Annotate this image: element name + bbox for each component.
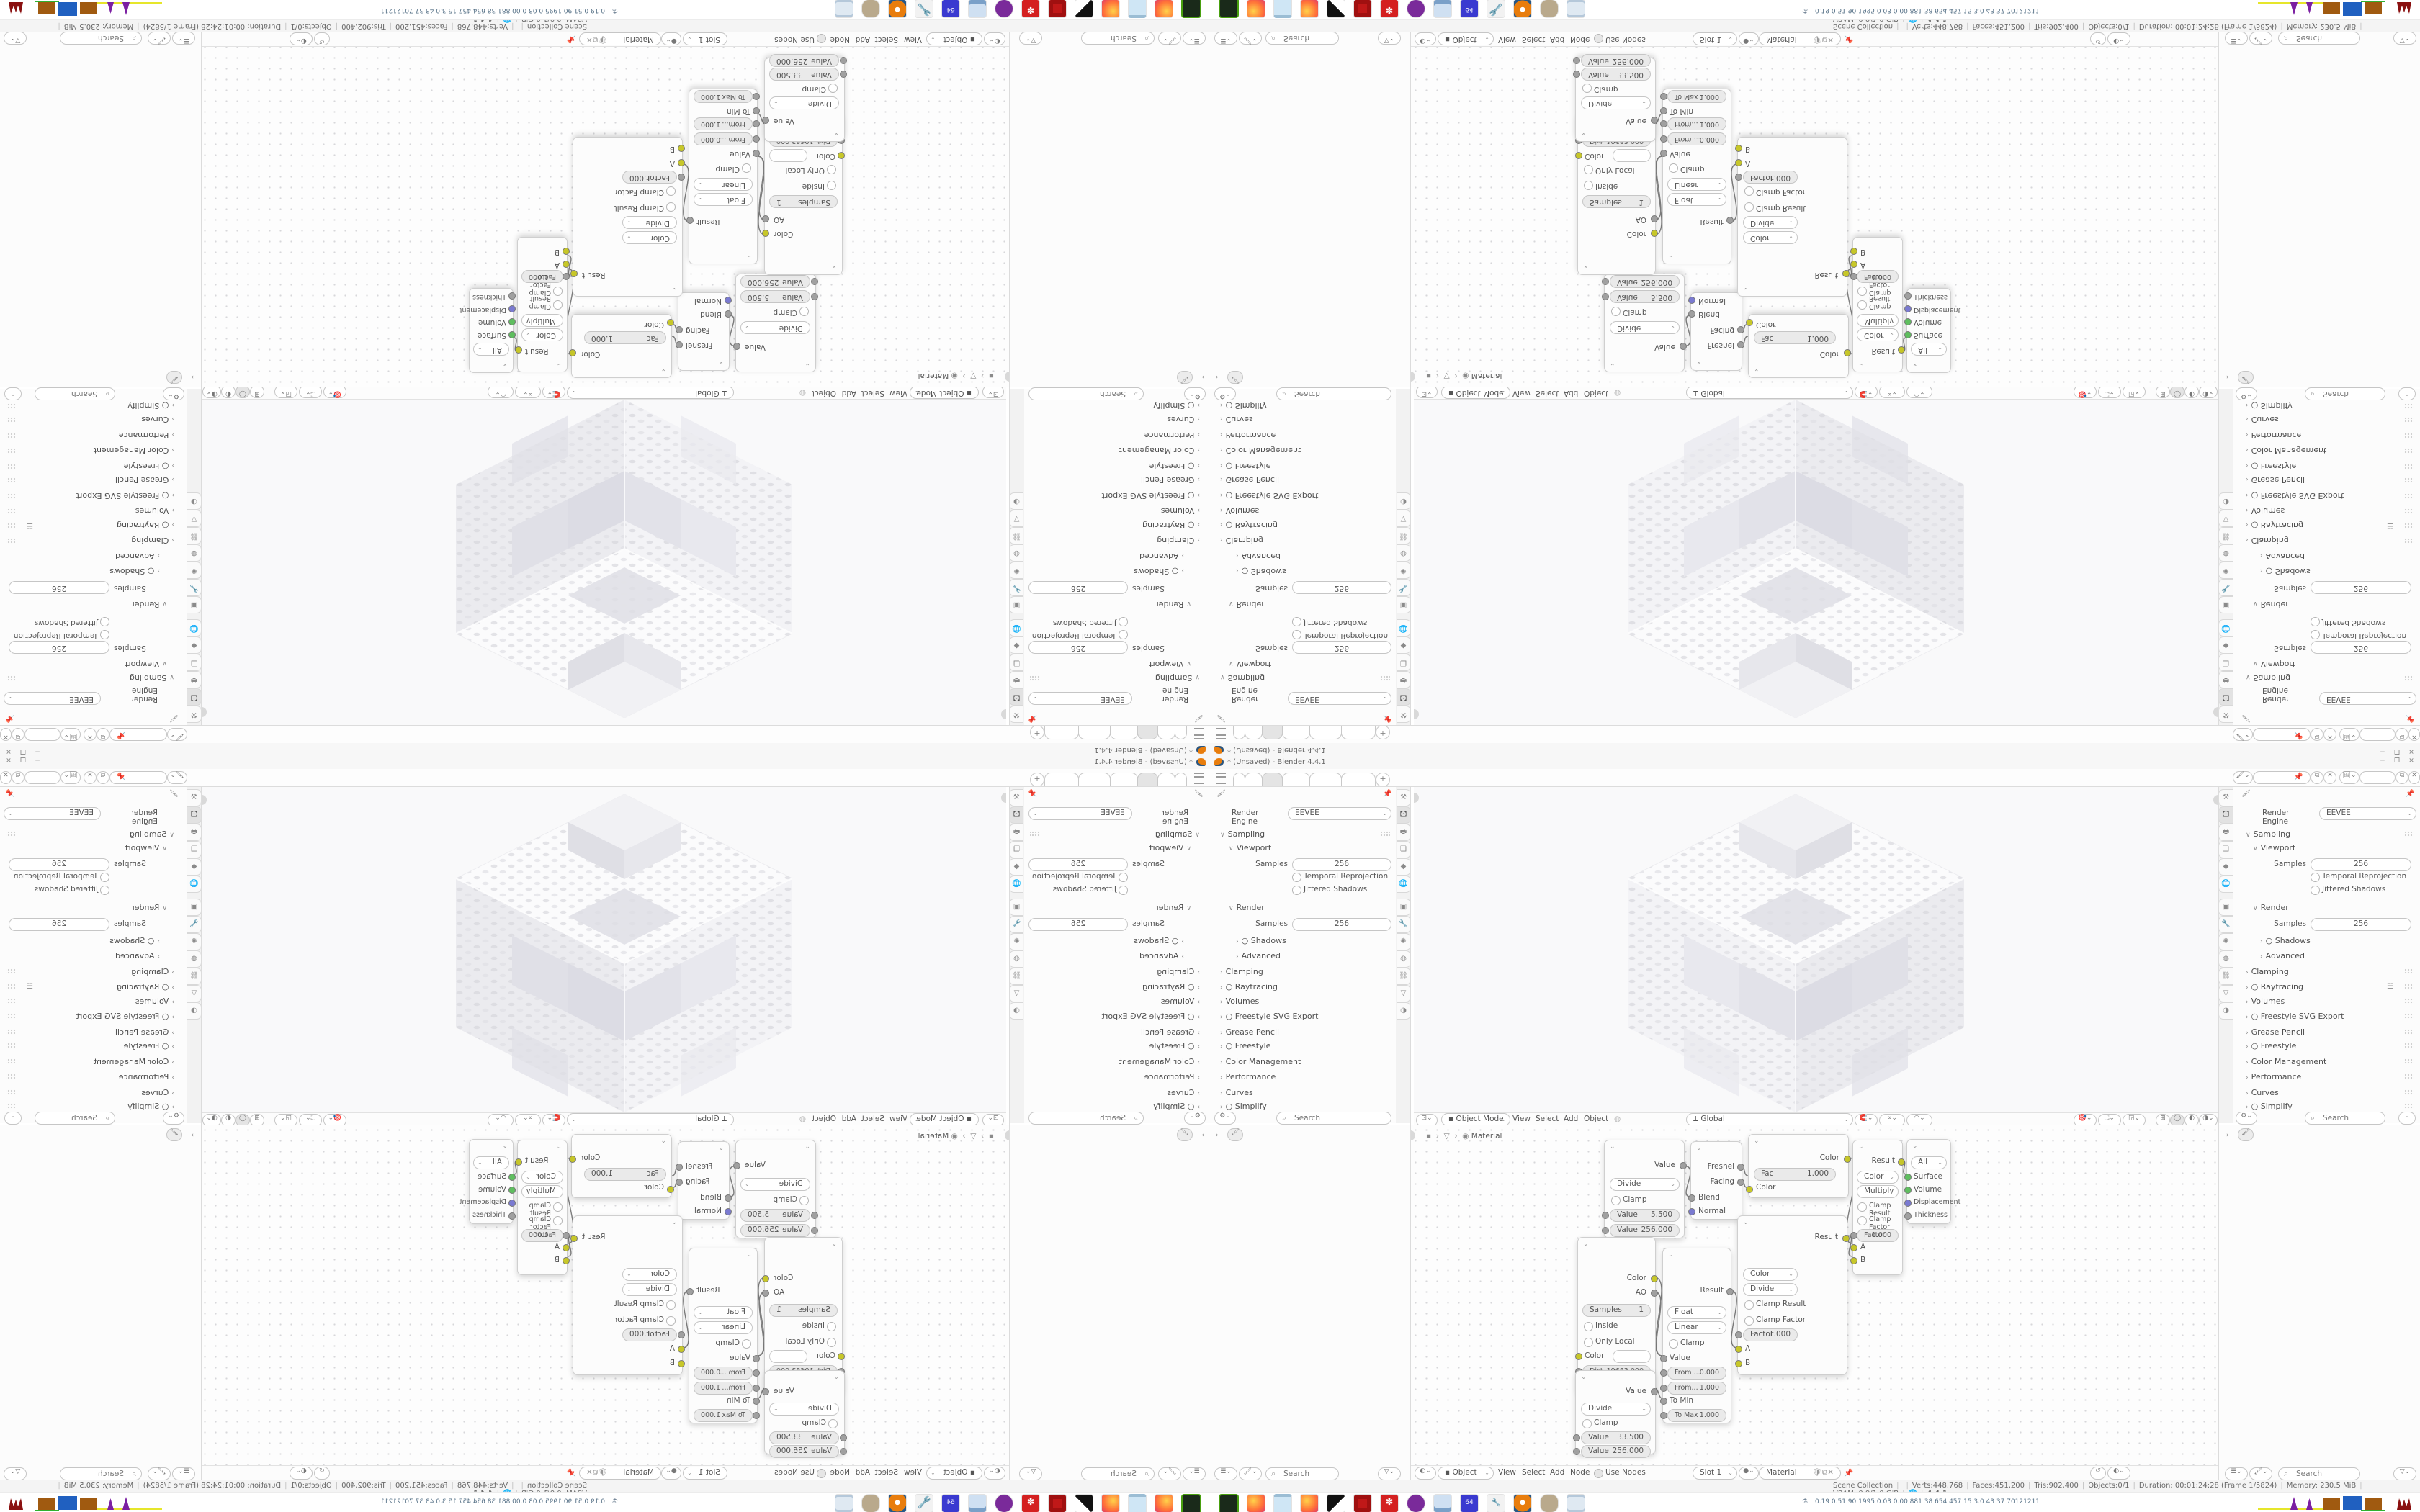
notes-icon[interactable] [1128,0,1147,18]
socket-fresnel-out[interactable] [676,341,683,348]
value-field-1[interactable]: Value5.500 [1610,1209,1680,1222]
prop-tab-particles[interactable]: ✺ [2218,933,2233,950]
use-nodes-checkbox[interactable]: Use Nodes [1594,1468,1652,1478]
copy-datablock-button[interactable]: ⧉ [97,728,109,741]
factor-field[interactable]: Factor1.000 [521,1229,563,1242]
pin-icon[interactable]: 📌 [6,790,14,798]
brush-asset-button[interactable]: 🖌 [166,1128,182,1141]
overlay-node-button[interactable]: ◐⌄ [290,1467,313,1480]
section-grease-pencil[interactable]: ›Grease Pencil [2246,474,2305,485]
value-field-2[interactable]: Value256.000 [769,1445,839,1458]
value-field-1[interactable]: Value33.500 [769,1431,839,1444]
collapse-chevron-icon[interactable]: ⌄ [1696,360,1702,367]
socket-a-in[interactable] [678,1346,685,1353]
copy-image-button[interactable]: ⧉ [12,728,24,741]
brush-asset-button[interactable]: 🖌 [1177,371,1193,384]
math-operation-dropdown[interactable]: Divide⌄ [740,321,810,334]
socket-factor-in[interactable] [1850,1232,1857,1239]
brush-name-field[interactable]: 📌 [109,771,167,784]
render-samples-field[interactable]: 256 [1028,918,1128,931]
menu-view[interactable]: View [1512,389,1531,397]
brush-asset-button[interactable]: 🖌 [1227,1128,1243,1141]
clamp-checkbox[interactable]: Clamp [1611,307,1676,317]
socket-volume-in[interactable] [1904,1187,1912,1194]
clamp-checkbox[interactable]: Clamp [1582,1418,1647,1428]
section-simplify[interactable]: ›○ Simplify [127,1102,174,1112]
mix-type-dropdown[interactable]: Color⌄ [622,1268,677,1281]
shelf-search[interactable] [1081,1467,1155,1480]
section-grease-pencil[interactable]: ›Grease Pencil [2246,1027,2305,1038]
prop-tab-output[interactable]: 🖶 [2218,824,2233,841]
socket-fresnel-out[interactable] [676,1164,683,1171]
prop-tab-data[interactable]: ▽ [1397,985,1411,1002]
jittered-shadows-checkbox[interactable]: Jittered Shadows [2311,885,2415,895]
collapse-chevron-icon[interactable]: ⌄ [660,1138,666,1145]
clamp-factor-checkbox[interactable]: Clamp Factor [519,1215,563,1225]
settings-red-icon[interactable] [1353,0,1372,18]
viewport-samples-field[interactable]: 256 [2311,858,2411,871]
socket-value-in-2[interactable] [811,278,818,285]
image-name-field[interactable] [2359,771,2396,784]
prop-tab-render[interactable]: 🖸 [1397,688,1411,706]
blender-icon[interactable] [888,0,907,18]
prop-tab-material[interactable]: ◑ [1009,492,1023,510]
collapse-chevron-icon[interactable]: ⌄ [502,1143,508,1150]
prop-tab-physics[interactable]: ◍ [187,544,202,562]
prop-tab-output[interactable]: 🖶 [1397,824,1411,841]
prop-tab-particles[interactable]: ✺ [187,562,202,579]
list-icon[interactable]: ☱ [27,982,33,991]
prop-tab-particles[interactable]: ✺ [1009,933,1023,950]
node-math-divide-2[interactable]: ⌄ Value Divide⌄ Clamp Value33.500 Value2… [764,1370,845,1454]
interpolation-dropdown[interactable]: Linear⌄ [1667,178,1726,191]
inside-checkbox[interactable]: Inside [1584,1321,1649,1331]
restore-button[interactable]: ❐ [19,747,27,755]
socket-from-max-in[interactable] [1660,120,1667,127]
socket-volume-in[interactable] [508,318,516,325]
socket-result-out[interactable] [1898,346,1905,354]
section-volumes[interactable]: ›Volumes [1220,996,1259,1007]
shader-node-editor[interactable]: ▪ › ▽ › ◉ Material [1410,47,2218,387]
socket-surface-in[interactable] [1904,1174,1912,1181]
socket-volume-in[interactable] [508,1187,516,1194]
section-raytracing[interactable]: ›○ Raytracing [1142,520,1200,530]
socket-displacement-in[interactable] [508,1200,516,1207]
menu-add[interactable]: Add [842,389,856,397]
section-color-management[interactable]: ›Color Management [1119,1057,1200,1067]
drag-handle[interactable] [2404,464,2414,469]
prop-tab-view-layer[interactable]: ❏ [1397,654,1411,671]
socket-b-in[interactable] [563,1257,570,1264]
prop-tab-modifiers[interactable]: 🔧 [1009,579,1023,596]
menu-hamburger-icon[interactable] [1194,728,1204,739]
copy-datablock-button[interactable]: ⧉ [2311,771,2323,784]
section-viewport[interactable]: ∨Viewport [125,659,167,669]
brush-name-field[interactable]: 📌 [109,728,167,741]
socket-factor-in[interactable] [1735,174,1742,181]
section-curves[interactable]: ›Curves [141,1088,174,1098]
minimize-button[interactable]: ─ [2378,747,2387,755]
section-color-management[interactable]: ›Color Management [1119,445,1200,455]
gear-red-icon[interactable]: ✽ [1380,1494,1399,1512]
shelf-search[interactable] [2278,1467,2360,1480]
editor-type-button[interactable]: ⚙⌄ [1184,387,1206,400]
pin-icon[interactable]: 📌 [1028,790,1037,798]
from-max-field[interactable]: From...1.000 [1667,1382,1726,1395]
section-advanced[interactable]: ›Advanced [115,551,160,561]
section-performance[interactable]: ›Performance [119,1072,174,1082]
data-type-dropdown[interactable]: Float⌄ [694,193,753,206]
brush-datablock-selector[interactable]: 🖌⌄ [2233,771,2253,784]
drag-handle[interactable] [2404,1043,2414,1048]
collapse-chevron-icon[interactable]: ⌄ [1754,1138,1760,1145]
section-shadows[interactable]: ›○ Shadows [2260,936,2311,946]
node-mix-c[interactable]: ⌄ Result Color⌄ Divide⌄ Clamp Result Cla… [1737,137,1847,297]
floppy-64-icon[interactable]: 64 [941,0,960,18]
drag-handle[interactable] [2404,403,2414,409]
document-scroll-icon[interactable] [1567,1494,1585,1512]
clamp-checkbox[interactable]: Clamp [773,1418,838,1428]
image-name-field[interactable] [24,771,60,784]
prop-tab-output[interactable]: 🖶 [2218,671,2233,688]
socket-color-out[interactable] [1651,1275,1658,1282]
prop-tab-scene[interactable]: ◆ [1397,636,1411,654]
factor-field[interactable]: Factor1.000 [1743,171,1798,184]
color-swatch-field[interactable] [1613,1350,1651,1363]
brush-datablock-selector[interactable]: 🖌⌄ [167,771,187,784]
close-button[interactable]: ✕ [4,757,13,765]
workspace-tab-5[interactable] [1078,725,1111,739]
menu-hamburger-icon[interactable] [1194,773,1204,784]
node-fresnel[interactable]: ⌄ Fresnel Facing Blend Normal [1690,292,1742,371]
gear-red-icon[interactable]: ✽ [1021,1494,1040,1512]
drag-handle[interactable] [2404,508,2414,514]
viewport-samples-field[interactable]: 256 [9,641,109,654]
brush-asset-button[interactable]: 🖌 [2238,371,2254,384]
editor-type-button[interactable]: ⚙⌄ [1214,1112,1236,1125]
node-mix-a[interactable]: ⌄ Color Fac1.000 Color [1748,314,1849,378]
workspace-tab-4[interactable] [1110,773,1138,787]
section-curves[interactable]: ›Curves [1167,1088,1200,1098]
temporal-reprojection-checkbox[interactable]: Temporal Reprojection [2311,872,2415,882]
prop-tab-world[interactable]: 🌐 [187,619,202,636]
collapse-chevron-icon[interactable]: ⌄ [671,286,677,293]
workspace-tab-4[interactable] [1282,725,1310,739]
image-datablock-selector[interactable]: 🖼⌄ [60,728,81,741]
factor-field[interactable]: Factor1.000 [622,1328,677,1341]
socket-from-max-in[interactable] [753,120,760,127]
menu-add[interactable]: Add [1564,389,1578,397]
collapse-chevron-icon[interactable]: ⌄ [1581,131,1587,138]
prop-tab-output[interactable]: 🖶 [187,671,202,688]
socket-ao-out[interactable] [1651,1290,1658,1297]
node-mix-a[interactable]: ⌄ Color Fac1.000 Color [571,1134,672,1198]
only-local-checkbox[interactable]: Only Local [1584,165,1649,175]
snap-node-button[interactable]: ↺ [314,32,330,45]
menu-node[interactable]: Node [1570,35,1590,44]
prop-tab-modifiers[interactable]: 🔧 [1397,579,1411,596]
prop-tab-constraints[interactable]: ⛓ [1397,968,1411,985]
socket-value-in-2[interactable] [840,57,847,64]
brush-shelf-collapsed[interactable]: › [1198,1130,1204,1140]
workspace-tab-2[interactable] [1157,773,1175,787]
prop-tab-output[interactable]: 🖶 [1009,671,1023,688]
prop-tab-render[interactable]: 🖸 [187,688,202,706]
socket-color-out[interactable] [1651,230,1658,237]
notes-icon[interactable] [1128,1494,1147,1512]
section-freestyle[interactable]: ›○ Freestyle [1149,461,1200,471]
section-performance[interactable]: ›Performance [1144,1072,1200,1082]
node-sidebar-toggle[interactable] [1410,1130,1415,1140]
gimp-icon[interactable] [1540,0,1559,18]
drag-handle[interactable] [6,1013,16,1019]
properties-search[interactable] [1028,387,1144,400]
socket-surface-in[interactable] [508,1174,516,1181]
shader-type-dropdown[interactable]: ▪ Object⌄ [1438,32,1494,45]
prop-tab-tool[interactable]: ⚒ [1397,789,1411,806]
socket-result-out[interactable] [1842,270,1850,277]
node-fresnel[interactable]: ⌄ Fresnel Facing Blend Normal [678,1141,730,1220]
section-freestyle-svg[interactable]: ›○ Freestyle SVG Export [2246,490,2344,500]
fac-field[interactable]: Fac1.000 [1754,1168,1836,1181]
socket-displacement-in[interactable] [1904,305,1912,312]
wrench-tool-icon[interactable]: 🔧 [915,1494,933,1512]
drag-handle[interactable] [2404,998,2414,1004]
math-operation-dropdown[interactable]: Divide⌄ [1581,1403,1651,1416]
prop-tab-world[interactable]: 🌐 [1009,619,1023,636]
prop-tab-object[interactable]: ▣ [1397,899,1411,916]
collapse-chevron-icon[interactable]: ⌄ [805,1143,810,1151]
wrench-tool-icon[interactable]: 🔧 [1487,1494,1505,1512]
socket-thickness-in[interactable] [508,292,516,300]
drag-handle[interactable] [6,464,16,469]
minimize-button[interactable]: ─ [2378,757,2387,765]
socket-b-in[interactable] [563,248,570,255]
node-mix-c[interactable]: ⌄ Result Color⌄ Divide⌄ Clamp Result Cla… [573,137,683,297]
math-operation-dropdown[interactable]: Divide⌄ [1581,96,1651,109]
snap-node-button[interactable]: ↺ [2090,32,2106,45]
menu-select[interactable]: Select [1522,1468,1545,1477]
prop-tab-data[interactable]: ▽ [2218,510,2233,527]
section-freestyle[interactable]: ›○ Freestyle [2246,1041,2296,1051]
clamp-result-checkbox[interactable]: Clamp Result [519,1202,563,1212]
viewport-samples-field[interactable]: 256 [1028,641,1128,654]
node-mix-b[interactable]: ⌄ Result Color⌄ Multiply⌄ Clamp Result C… [517,237,568,372]
socket-factor-in[interactable] [563,273,570,280]
new-tab-button[interactable]: + [1030,725,1044,739]
section-performance[interactable]: ›Performance [2246,1072,2301,1082]
value-field-1[interactable]: Value33.500 [769,68,839,81]
workspace-tab-1[interactable] [1175,773,1187,787]
node-map-range[interactable]: ⌄ Result Float⌄ Linear⌄ Clamp Value From… [1662,89,1731,264]
viewport-samples-field[interactable]: 256 [1292,641,1391,654]
socket-value-out[interactable] [733,343,740,350]
output-target-dropdown[interactable]: All⌄ [473,343,509,356]
socket-factor-in[interactable] [678,1331,685,1338]
fac-field[interactable]: Fac1.000 [1754,331,1836,344]
section-clamping[interactable]: ›Clamping [131,535,174,545]
socket-ao-out[interactable] [1651,215,1658,222]
prop-tab-material[interactable]: ◑ [1397,492,1411,510]
section-freestyle-svg[interactable]: ›○ Freestyle SVG Export [76,490,174,500]
socket-fresnel-out[interactable] [1737,1164,1744,1171]
gimp-icon[interactable] [861,1494,880,1512]
prop-tab-physics[interactable]: ◍ [187,950,202,968]
socket-result-out[interactable] [686,1288,694,1295]
menger-sponge-object[interactable] [1628,400,1964,718]
node-mix-a[interactable]: ⌄ Color Fac1.000 Color [1748,1134,1849,1198]
terminal-icon[interactable] [1181,1494,1201,1512]
socket-value-in-1[interactable] [811,293,818,300]
socket-thickness-in[interactable] [1904,1212,1912,1220]
socket-to-max-in[interactable] [753,93,760,100]
to-max-field[interactable]: To Max1.000 [1667,90,1726,103]
menu-object[interactable]: Object [812,1115,836,1123]
use-nodes-checkbox[interactable]: Use Nodes [768,34,826,44]
unlink-image-button[interactable]: ✕ [2408,728,2420,741]
mix-type-dropdown[interactable]: Color⌄ [1857,328,1899,341]
settings-red-icon[interactable] [1048,0,1067,18]
collapse-chevron-icon[interactable]: ⌄ [1858,1143,1864,1151]
prop-tab-data[interactable]: ▽ [2218,985,2233,1002]
collapse-button[interactable]: ⌄ [2398,387,2416,400]
socket-thickness-in[interactable] [1904,292,1912,300]
menu-view[interactable]: View [1498,35,1516,44]
material-browse-button[interactable]: ●⌄ [1739,1467,1759,1480]
shader-type-dropdown[interactable]: ▪ Object⌄ [926,32,982,45]
mix-type-dropdown[interactable]: Color⌄ [1743,1268,1798,1281]
collapse-chevron-icon[interactable]: ⌄ [1581,1374,1587,1381]
unlink-image-button[interactable]: ✕ [0,728,12,741]
from-min-field[interactable]: From ...0.000 [694,132,753,145]
restore-button[interactable]: ❐ [2393,747,2401,755]
inside-checkbox[interactable]: Inside [1584,181,1649,191]
mode-dropdown[interactable]: ▪ Object Mode⌄ [1441,386,1510,399]
section-curves[interactable]: ›Curves [1220,1088,1253,1098]
section-clamping[interactable]: ›Clamping [2246,535,2289,545]
prop-tab-physics[interactable]: ◍ [2218,544,2233,562]
workspace-tab-6[interactable] [1341,725,1376,739]
menu-node[interactable]: Node [830,1468,850,1477]
socket-result-out[interactable] [1726,1288,1734,1295]
socket-color-out[interactable] [1844,1156,1851,1163]
collapse-chevron-icon[interactable]: ⌄ [746,1251,752,1259]
socket-result-out[interactable] [515,1158,522,1166]
only-local-checkbox[interactable]: Only Local [771,165,836,175]
samples-field[interactable]: Samples1 [1582,1304,1651,1317]
math-operation-dropdown[interactable]: Divide⌄ [740,1178,810,1191]
section-advanced[interactable]: ›Advanced [2260,551,2305,561]
prop-tab-physics[interactable]: ◍ [1009,544,1023,562]
collapse-chevron-icon[interactable]: ⌄ [833,131,839,138]
section-freestyle[interactable]: ›○ Freestyle [1220,461,1270,471]
section-curves[interactable]: ›Curves [2246,414,2279,424]
filter-funnel-button[interactable]: ▽⌄ [1378,32,1401,45]
new-tab-button[interactable]: + [1376,725,1390,739]
socket-blend-in[interactable] [1688,1194,1695,1202]
to-max-field[interactable]: To Max1.000 [1667,1409,1726,1422]
to-max-field[interactable]: To Max1.000 [694,90,753,103]
privacy-mask-icon[interactable] [1407,1494,1425,1512]
socket-color-out[interactable] [569,1156,576,1163]
image-datablock-selector[interactable]: 🖼⌄ [2339,728,2359,741]
from-min-field[interactable]: From ...0.000 [694,1367,753,1380]
drag-handle[interactable] [1030,831,1040,837]
brush-filter-button[interactable]: 🖌⌄ [1158,32,1181,45]
socket-a-in[interactable] [563,261,570,268]
pin-icon[interactable]: 📌 [117,772,126,783]
section-simplify[interactable]: ›○ Simplify [1220,400,1267,410]
output-target-dropdown[interactable]: All⌄ [1911,1156,1947,1169]
prop-tab-physics[interactable]: ◍ [1397,544,1411,562]
wrench-tool-icon[interactable]: 🔧 [915,0,933,18]
wrench-tool-icon[interactable]: 🔧 [1487,0,1505,18]
jittered-shadows-checkbox[interactable]: Jittered Shadows [2311,617,2415,627]
collapse-chevron-icon[interactable]: ⌄ [1583,1241,1589,1248]
jittered-shadows-checkbox[interactable]: Jittered Shadows [1292,617,1393,627]
brush-asset-button[interactable]: 🖌 [166,371,182,384]
viewport-samples-field[interactable]: 256 [1028,858,1128,871]
brush-shelf-collapsed[interactable]: › [1198,372,1204,382]
socket-color-in[interactable] [667,319,674,326]
menu-select[interactable]: Select [861,389,884,397]
blend-mode-dropdown[interactable]: Multiply⌄ [521,314,563,327]
section-advanced[interactable]: ›Advanced [2260,951,2305,961]
use-nodes-checkbox[interactable]: Use Nodes [768,1468,826,1478]
prop-tab-object[interactable]: ▣ [2218,899,2233,916]
socket-result-out[interactable] [1898,1158,1905,1166]
math-operation-dropdown[interactable]: Divide⌄ [769,1403,839,1416]
drag-handle[interactable] [6,477,16,483]
section-grease-pencil[interactable]: ›Grease Pencil [1141,474,1200,485]
from-max-field[interactable]: From...1.000 [694,117,753,130]
value-field-2[interactable]: Value256.000 [1610,275,1680,288]
menu-view[interactable]: View [1512,1115,1531,1123]
drag-handle[interactable] [6,831,16,837]
socket-color-in[interactable] [1746,1186,1753,1193]
prop-tab-object[interactable]: ▣ [187,596,202,613]
document-scroll-icon[interactable] [1567,0,1585,18]
clamp-checkbox[interactable]: Clamp [1669,1338,1719,1349]
render-engine-dropdown[interactable]: EEVEE⌄ [1028,692,1132,705]
mix-type-dropdown[interactable]: Color⌄ [521,1171,563,1184]
socket-to-min-in[interactable] [1660,107,1667,114]
collapse-chevron-icon[interactable]: ⌄ [718,360,724,367]
socket-a-in[interactable] [678,159,685,166]
clamp-result-checkbox[interactable]: Clamp Result [1744,202,1809,212]
section-shadows[interactable]: ›○ Shadows [1236,566,1286,576]
transform-orientation-dropdown[interactable]: ⟂ Global⌄ [567,386,734,399]
shader-node-editor[interactable]: ▪ › ▽ › ◉ Material [202,47,1010,387]
viewport-3d[interactable] [1414,387,2218,726]
socket-value-out[interactable] [1651,117,1658,124]
drag-handle[interactable] [6,968,16,974]
section-raytracing[interactable]: ›○ Raytracing [117,520,174,530]
socket-color-in[interactable] [1575,1353,1582,1360]
sidebar-toggle-left[interactable] [1001,709,1006,719]
blend-mode-dropdown[interactable]: Divide⌄ [1743,1283,1798,1296]
prop-tab-constraints[interactable]: ⛓ [1397,527,1411,544]
menu-select[interactable]: Select [861,1115,884,1123]
editor-type-button[interactable]: ⚙⌄ [1184,1112,1206,1125]
menu-add[interactable]: Add [856,1468,870,1477]
prop-tab-render[interactable]: 🖸 [2218,806,2233,824]
factor-field[interactable]: Factor1.000 [1743,1328,1798,1341]
brush-shelf-collapsed[interactable]: › [2226,1130,2232,1140]
prop-tab-constraints[interactable]: ⛓ [2218,968,2233,985]
firefox-icon[interactable] [1155,1494,1173,1512]
section-raytracing[interactable]: ›○ Raytracing [117,982,174,992]
